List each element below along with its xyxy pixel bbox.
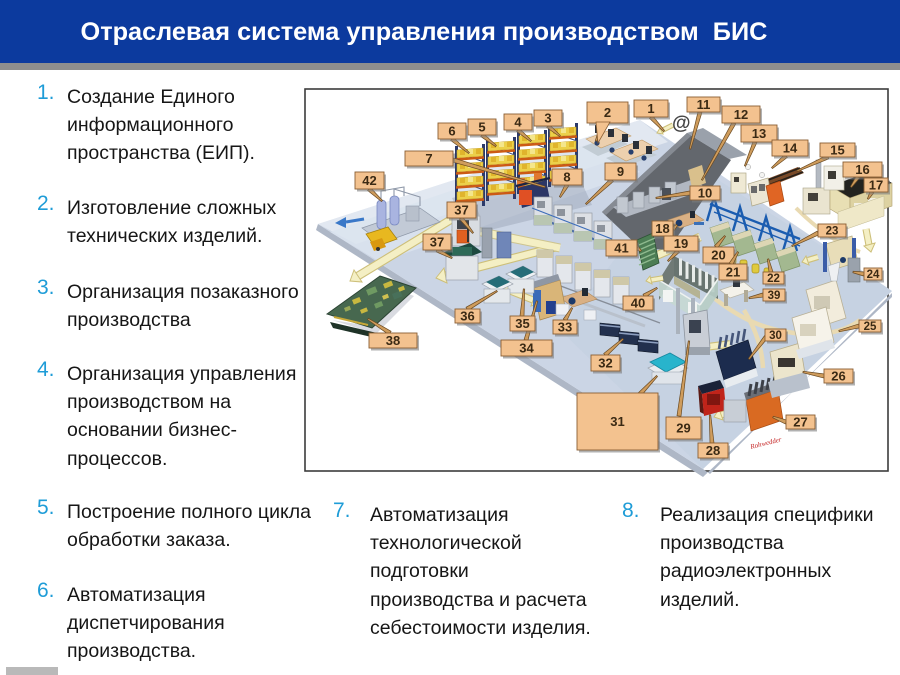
svg-text:5: 5 [478,120,485,135]
svg-text:25: 25 [864,321,877,333]
svg-text:40: 40 [631,296,645,311]
svg-text:10: 10 [698,186,712,201]
svg-text:38: 38 [386,333,400,348]
svg-text:41: 41 [614,241,628,256]
svg-text:4: 4 [514,115,522,130]
svg-text:11: 11 [697,97,711,112]
svg-text:16: 16 [855,162,869,177]
svg-text:18: 18 [655,221,669,236]
svg-text:36: 36 [460,309,474,324]
svg-text:35: 35 [515,316,529,331]
svg-text:17: 17 [869,178,883,193]
svg-text:19: 19 [674,236,688,251]
svg-text:12: 12 [734,107,748,122]
svg-text:39: 39 [768,290,781,302]
svg-text:21: 21 [726,265,740,280]
svg-text:2: 2 [604,105,611,120]
svg-text:22: 22 [767,273,780,285]
svg-text:23: 23 [826,226,839,238]
svg-text:6: 6 [448,124,455,139]
svg-text:8: 8 [563,170,570,185]
svg-text:30: 30 [769,330,782,342]
svg-text:15: 15 [830,143,844,158]
svg-text:@: @ [672,113,691,134]
svg-text:14: 14 [783,141,798,156]
svg-text:7: 7 [425,151,432,166]
svg-text:3: 3 [544,111,551,126]
svg-text:37: 37 [454,203,468,218]
svg-text:42: 42 [362,173,376,188]
svg-text:37: 37 [430,235,444,250]
svg-text:29: 29 [676,421,690,436]
svg-text:33: 33 [558,320,572,335]
svg-text:31: 31 [610,414,624,429]
svg-text:26: 26 [831,369,845,384]
svg-text:13: 13 [752,126,766,141]
svg-text:20: 20 [711,248,725,263]
svg-text:32: 32 [598,356,612,371]
svg-text:9: 9 [617,164,624,179]
svg-text:34: 34 [519,341,534,356]
svg-text:27: 27 [793,415,807,430]
svg-text:28: 28 [706,443,720,458]
svg-text:1: 1 [647,101,654,116]
svg-text:24: 24 [867,269,880,281]
